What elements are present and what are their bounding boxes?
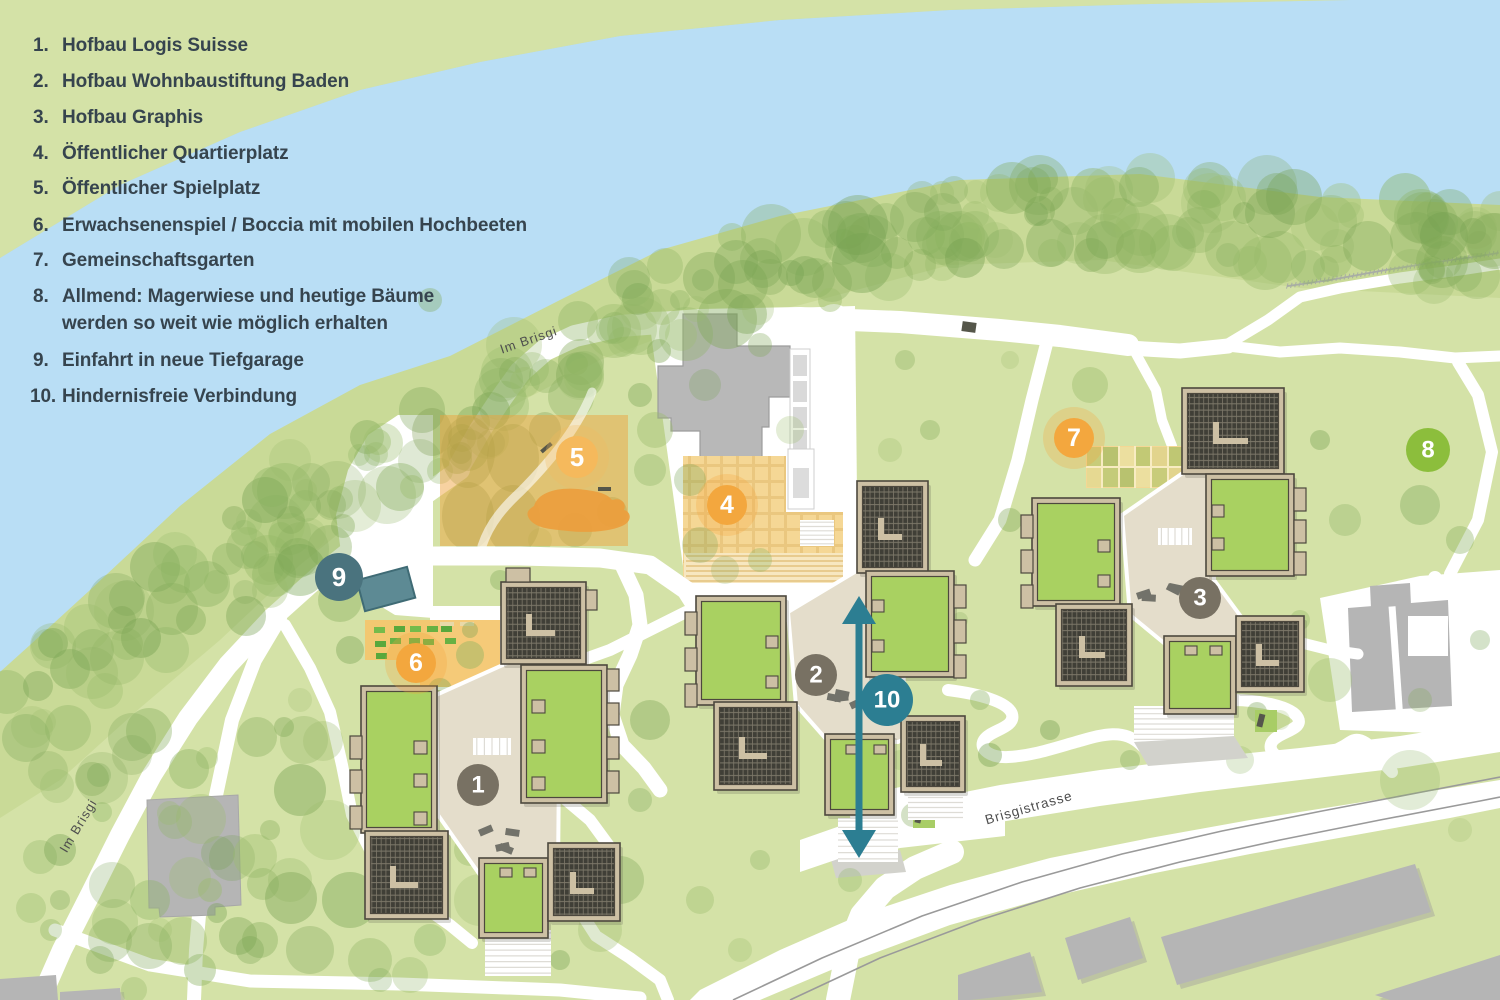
- svg-text:3: 3: [1193, 585, 1206, 612]
- svg-text:Öffentlicher Spielplatz: Öffentlicher Spielplatz: [62, 178, 260, 199]
- svg-text:8: 8: [1421, 437, 1434, 464]
- svg-text:10.: 10.: [30, 386, 56, 407]
- svg-text:Hofbau Wohnbaustiftung Baden: Hofbau Wohnbaustiftung Baden: [62, 71, 349, 92]
- svg-text:6: 6: [409, 649, 423, 677]
- svg-text:3.: 3.: [33, 107, 49, 128]
- svg-text:5.: 5.: [33, 178, 49, 199]
- svg-text:Hindernisfreie Verbindung: Hindernisfreie Verbindung: [62, 386, 297, 407]
- svg-text:Erwachsenenspiel / Boccia mit: Erwachsenenspiel / Boccia mit mobilen Ho…: [62, 215, 527, 236]
- svg-text:4.: 4.: [33, 143, 49, 164]
- svg-text:werden so weit wie möglich erh: werden so weit wie möglich erhalten: [61, 313, 388, 334]
- svg-text:Hofbau Logis Suisse: Hofbau Logis Suisse: [62, 35, 248, 56]
- svg-text:9: 9: [332, 562, 346, 592]
- svg-text:9.: 9.: [33, 350, 49, 371]
- svg-text:1: 1: [471, 772, 484, 799]
- svg-text:8.: 8.: [33, 286, 49, 307]
- svg-text:2.: 2.: [33, 71, 49, 92]
- svg-text:Hofbau Graphis: Hofbau Graphis: [62, 107, 203, 128]
- svg-text:Öffentlicher Quartierplatz: Öffentlicher Quartierplatz: [62, 143, 289, 164]
- svg-text:2: 2: [809, 662, 822, 689]
- svg-text:6.: 6.: [33, 215, 49, 236]
- svg-text:1.: 1.: [33, 35, 49, 56]
- svg-text:4: 4: [720, 491, 734, 519]
- svg-text:7.: 7.: [33, 250, 49, 271]
- svg-text:5: 5: [570, 442, 584, 472]
- svg-text:Einfahrt in neue Tiefgarage: Einfahrt in neue Tiefgarage: [62, 350, 304, 371]
- svg-text:Allmend: Magerwiese und heutig: Allmend: Magerwiese und heutige Bäume: [62, 286, 434, 307]
- svg-text:10: 10: [874, 687, 901, 714]
- svg-text:7: 7: [1067, 424, 1081, 452]
- svg-text:Gemeinschaftsgarten: Gemeinschaftsgarten: [62, 250, 254, 271]
